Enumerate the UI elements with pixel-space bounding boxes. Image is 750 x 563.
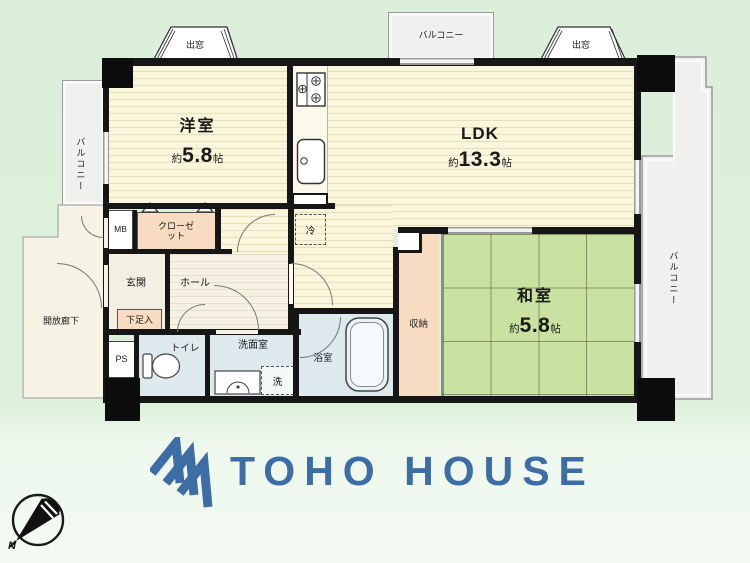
washing-machine-label: 洗 [273, 374, 283, 388]
room-ldk-size: 約13.3帖 [410, 148, 550, 172]
balcony-left-label: バルコニー [75, 118, 85, 210]
sliding-door [448, 227, 532, 234]
room-japanese-size: 約5.8帖 [465, 314, 605, 338]
closet-label: クローゼット [156, 221, 196, 242]
bathtub-icon [344, 316, 390, 393]
balcony-top-label: バルコニー [388, 30, 494, 40]
bay-window-top-right-label: 出窓 [546, 40, 616, 50]
door-opening [216, 330, 258, 334]
compass-north-label: N [8, 540, 16, 553]
kitchen-pass-through [292, 193, 328, 206]
wall [215, 209, 221, 254]
vanity-sink-icon [214, 370, 261, 395]
open-corridor-label: 開放廊下 [30, 316, 92, 326]
sliding-door-balcony [400, 58, 474, 65]
pillar [105, 378, 140, 421]
floorplan-page: バルコニー バルコニー バルコニー 出窓 出窓 開放廊下 [0, 0, 750, 563]
toho-house-logo-text: TOHO HOUSE [230, 448, 595, 495]
wall [103, 58, 675, 66]
room-hall-label: ホール [166, 278, 224, 290]
wall [165, 254, 170, 332]
sliding-door-balcony [634, 160, 641, 214]
wall [293, 314, 299, 396]
compass-icon [8, 492, 72, 556]
meter-box-label: MB [108, 225, 133, 235]
bay-window-top-left-label: 出窓 [160, 40, 230, 50]
wall [287, 58, 293, 208]
pillar [637, 378, 675, 421]
refrigerator-label: 冷 [306, 223, 316, 237]
wall [108, 249, 232, 254]
storage-floor [398, 233, 439, 396]
kitchen-sink-icon [296, 138, 326, 185]
sliding-window [634, 284, 641, 342]
room-washroom-label: 洗面室 [222, 340, 284, 352]
wall [293, 308, 398, 314]
door-opening [104, 265, 108, 307]
pillar [102, 58, 133, 88]
storage-opening [398, 233, 422, 253]
room-entrance-label: 玄関 [110, 278, 162, 290]
room-ldk-label: LDK [410, 124, 550, 144]
storage-label: 収納 [398, 320, 439, 331]
washing-machine-space: 洗 [261, 366, 294, 395]
shoe-cabinet-label: 下足入 [117, 315, 162, 325]
room-japanese-label: 和室 [465, 288, 605, 306]
refrigerator-space: 冷 [295, 214, 326, 245]
wall [133, 210, 137, 250]
balcony-right-label: バルコニー [668, 228, 678, 328]
pillar [637, 55, 675, 92]
toho-house-logo-icon [150, 437, 220, 511]
room-bathroom-label: 浴室 [303, 354, 343, 365]
room-western-label: 洋室 [130, 118, 265, 136]
stove-icon [296, 72, 326, 107]
room-western-size: 約5.8帖 [130, 144, 265, 168]
sliding-window [103, 132, 109, 184]
wall [103, 396, 675, 403]
room-toilet-label: トイレ [164, 344, 206, 355]
pipe-space-label: PS [108, 354, 135, 364]
